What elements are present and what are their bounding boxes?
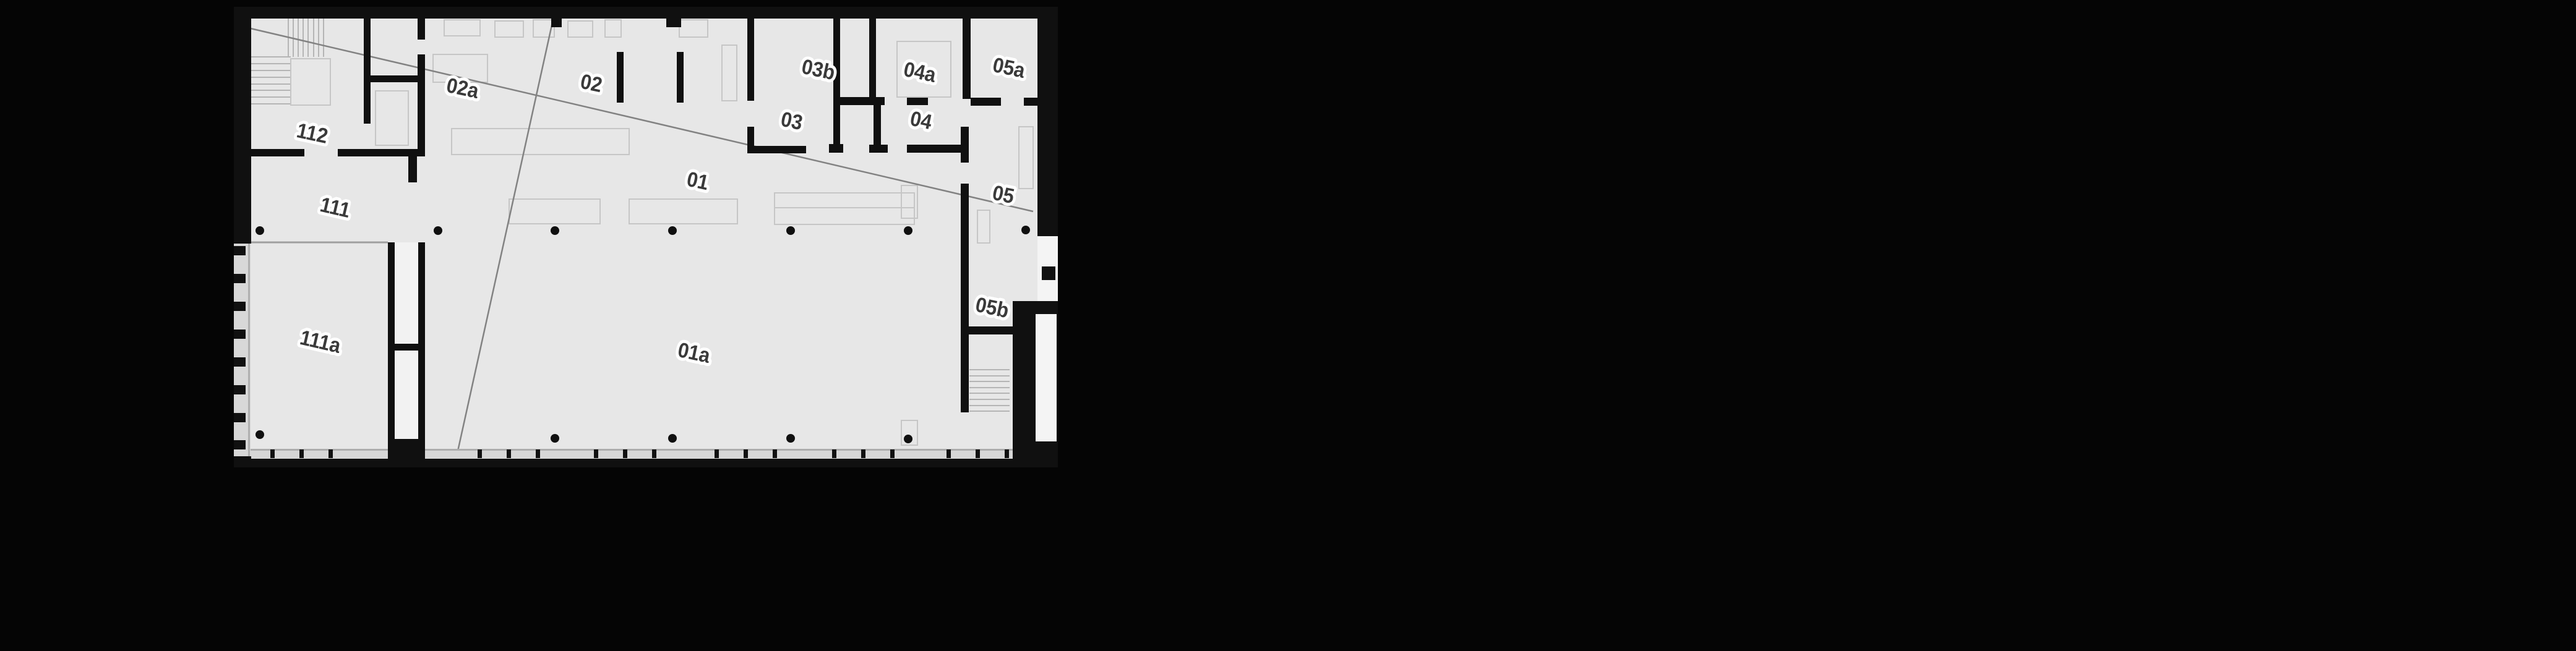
window-mullion-tick bbox=[507, 449, 511, 458]
window-mullion-tick bbox=[478, 449, 482, 458]
window-mullion-tick bbox=[299, 449, 304, 458]
column-marker bbox=[255, 430, 264, 439]
column-marker bbox=[255, 226, 264, 235]
window-mullion-tick bbox=[947, 449, 951, 458]
window-mullion-tick bbox=[623, 449, 627, 458]
column-marker bbox=[904, 226, 912, 235]
column-marker bbox=[668, 226, 677, 235]
window-mullion-tick bbox=[536, 449, 540, 458]
shaft bbox=[395, 242, 418, 439]
window-mullion-tick bbox=[328, 449, 333, 458]
column-marker bbox=[668, 434, 677, 443]
window-mullion-tick bbox=[861, 449, 865, 458]
column-marker bbox=[786, 434, 795, 443]
window-mullion-tick bbox=[744, 449, 748, 458]
column-marker bbox=[551, 434, 559, 443]
window-mullion-tick bbox=[976, 449, 980, 458]
column-marker bbox=[1021, 226, 1030, 234]
window-mullion-tick bbox=[715, 449, 719, 458]
window-mullion-tick bbox=[270, 449, 275, 458]
column-marker bbox=[551, 226, 559, 235]
window-mullion-tick bbox=[890, 449, 895, 458]
floor-plan-canvas: 112111111a02a020101a03b0304a0405a0505b bbox=[0, 0, 2576, 651]
window-mullion-tick bbox=[652, 449, 656, 458]
window-mullion-tick bbox=[832, 449, 836, 458]
column-marker bbox=[904, 435, 912, 443]
window-mullion-tick bbox=[594, 449, 598, 458]
column-marker bbox=[786, 226, 795, 235]
window-mullion-tick bbox=[1005, 449, 1009, 458]
column-marker bbox=[434, 226, 442, 235]
window-mullion-tick bbox=[773, 449, 777, 458]
floor-plan: 112111111a02a020101a03b0304a0405a0505b bbox=[0, 0, 2576, 651]
